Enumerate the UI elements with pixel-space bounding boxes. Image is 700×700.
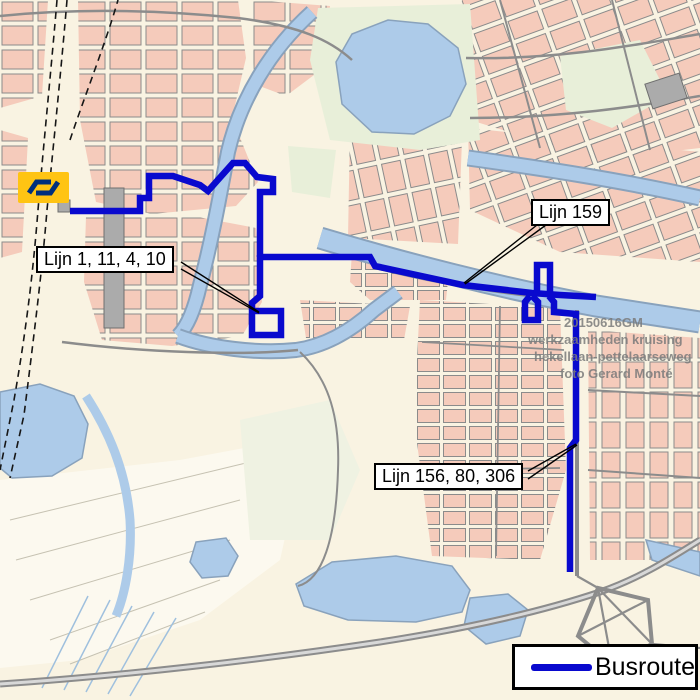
ns-logo-icon [18, 172, 69, 203]
watermark-streets: hekellaan-pettelaarseweg [534, 349, 692, 364]
watermark-date: 20150616GM [564, 315, 643, 330]
watermark-description: werkzaamheden kruising [528, 332, 683, 347]
callout-lijn-156-80-306: Lijn 156, 80, 306 [374, 463, 523, 490]
callout-lijn-159: Lijn 159 [531, 199, 610, 226]
busroute-legend-label: Busroute [595, 653, 695, 682]
legend-box: Busroute [512, 644, 698, 690]
callout-lijn-1-11-4-10: Lijn 1, 11, 4, 10 [36, 246, 174, 273]
busroute-legend-line [531, 664, 592, 671]
bus-route-map: 20150616GM werkzaamheden kruising hekell… [0, 0, 700, 700]
watermark-credit: foto Gerard Monté [560, 366, 673, 381]
